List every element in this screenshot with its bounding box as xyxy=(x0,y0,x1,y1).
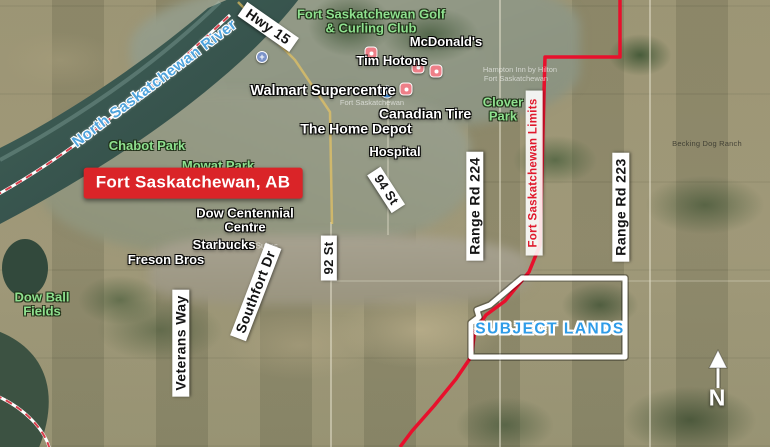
label-range-rd-223: Range Rd 223 xyxy=(612,152,629,261)
label-fort-saskatchewan-limits: Fort Saskatchewan Limits xyxy=(526,90,543,255)
label-tim-hortons: Tim Hotons xyxy=(356,54,427,68)
label-chabot-park: Chabot Park xyxy=(109,139,186,153)
label-hampton-inn-line2: Fort Saskatchewan xyxy=(484,75,548,83)
label-freson-bros: Freson Bros xyxy=(128,253,205,267)
food-pin-icon xyxy=(400,83,413,96)
label-mcdonalds: McDonald's xyxy=(410,35,482,49)
label-golf-club: Fort Saskatchewan Golf & Curling Club xyxy=(297,8,445,37)
label-hospital: Hospital xyxy=(369,145,420,159)
food-pin-icon xyxy=(430,65,443,78)
label-dow-centennial-centre: Dow Centennial Centre xyxy=(196,207,294,236)
subject-lands-outline xyxy=(471,278,625,357)
label-walmart-supercentre: Walmart Supercentre xyxy=(250,84,395,100)
label-range-rd-224: Range Rd 224 xyxy=(466,151,483,260)
map-canvas: Fort Saskatchewan Hampton Inn by Hilton … xyxy=(0,0,770,447)
label-home-depot: The Home Depot xyxy=(300,121,411,136)
label-starbucks: Starbucks xyxy=(193,238,256,252)
label-subject-lands: SUBJECT LANDS xyxy=(475,320,625,337)
label-92-st: 92 St xyxy=(321,235,337,280)
label-veterans-way: Veterans Way xyxy=(172,289,189,396)
label-hampton-inn-line1: Hampton Inn by Hilton xyxy=(483,66,557,74)
label-clover-park: Clover Park xyxy=(483,96,523,125)
north-label: N xyxy=(709,385,726,410)
pond xyxy=(2,239,48,297)
label-dow-ball-fields: Dow Ball Fields xyxy=(15,291,70,320)
label-becking-dog-ranch: Becking Dog Ranch xyxy=(672,140,742,148)
north-arrow-icon xyxy=(709,350,727,388)
city-banner: Fort Saskatchewan, AB xyxy=(84,168,303,199)
church-pin-icon: + xyxy=(256,51,268,63)
